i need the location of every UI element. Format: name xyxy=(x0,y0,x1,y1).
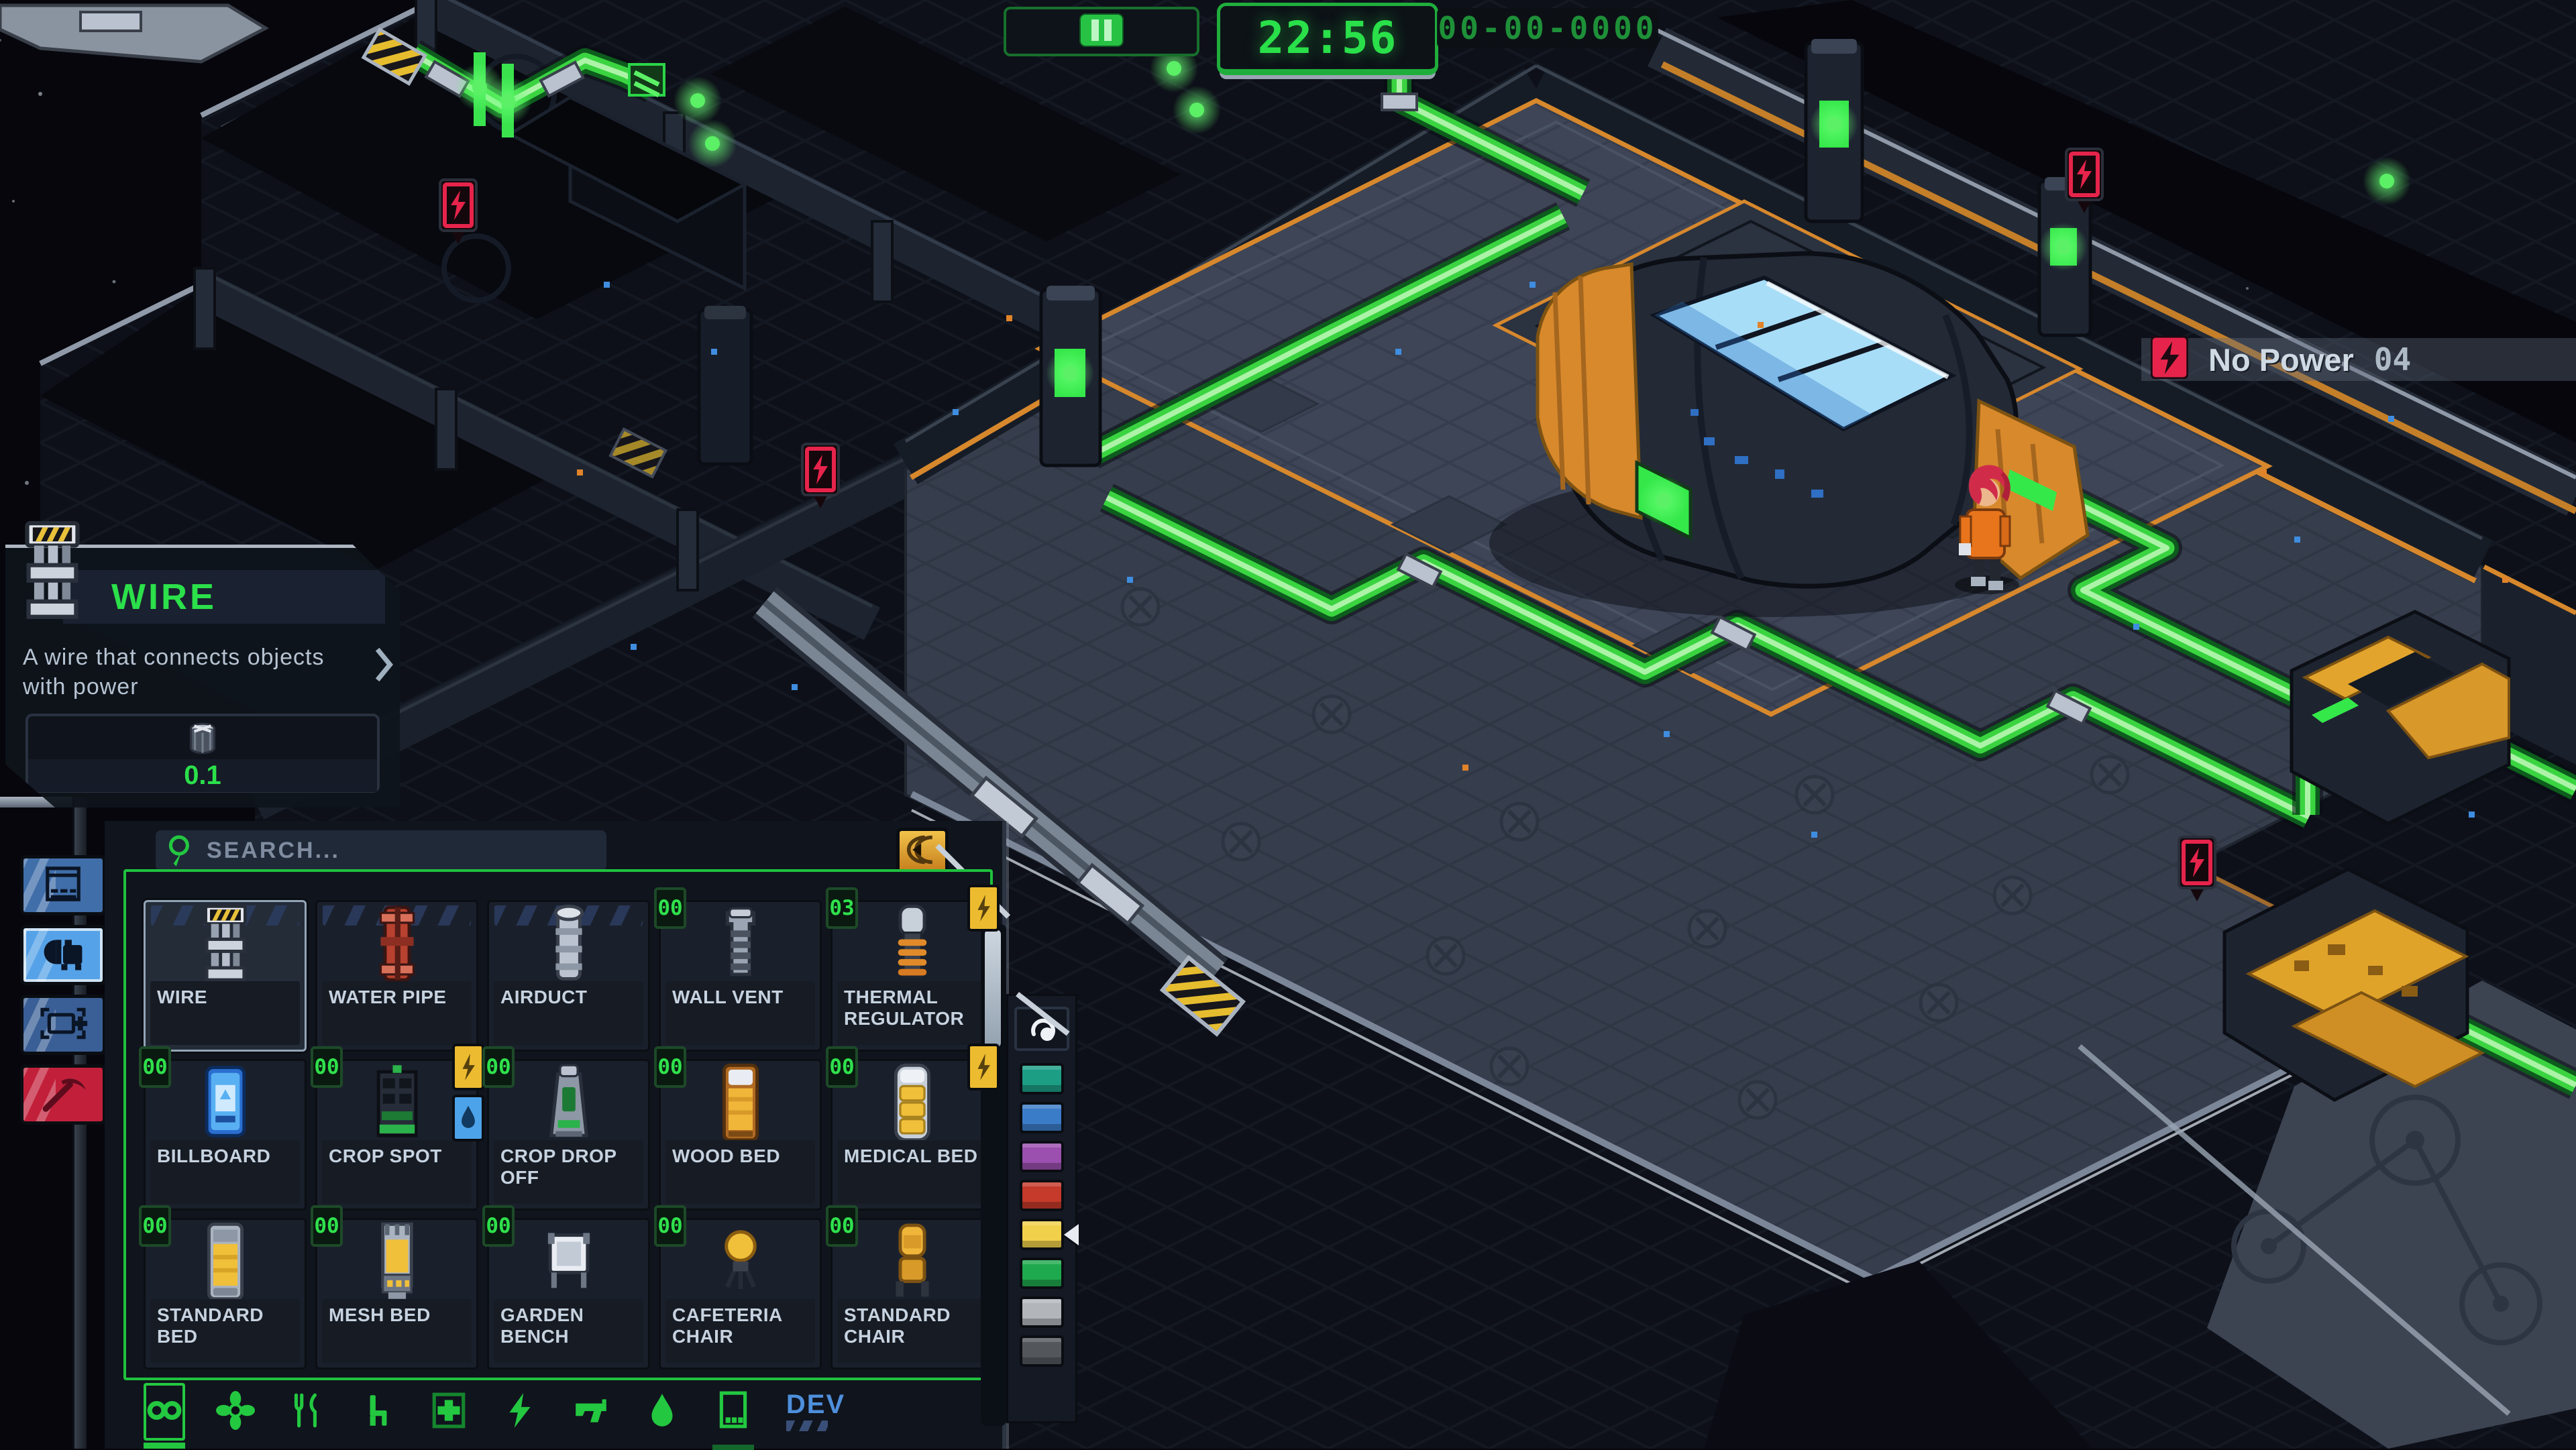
sidebar-button-objects[interactable] xyxy=(20,925,106,985)
category-tab-strip: DEV xyxy=(144,1383,848,1441)
zone-frame-plus-icon xyxy=(35,1003,91,1048)
tooltip-cost-box: 0.1 xyxy=(25,714,380,793)
swatch-blue[interactable] xyxy=(1020,1102,1064,1133)
tooltip-title: WIRE xyxy=(111,576,217,618)
item-crop-spot[interactable]: CROP SPOT00 xyxy=(315,1059,478,1211)
power-badge xyxy=(452,1044,484,1091)
item-label: WOOD BED xyxy=(672,1146,780,1166)
infinity-icon xyxy=(145,1391,184,1433)
tab-power[interactable] xyxy=(499,1383,541,1441)
droplet-icon xyxy=(643,1391,682,1433)
game-date: 00-00-0000 xyxy=(1437,8,1658,48)
sidebar-button-hull[interactable] xyxy=(20,855,106,915)
swatch-light-gray[interactable] xyxy=(1020,1296,1064,1328)
tab-security[interactable] xyxy=(570,1383,612,1441)
medkit-icon xyxy=(429,1391,468,1433)
cost-value: 0.1 xyxy=(28,759,377,792)
dev-tab-stripes xyxy=(786,1420,828,1431)
item-icon-wire xyxy=(146,906,305,981)
count-badge: 00 xyxy=(654,1046,686,1088)
gun-icon xyxy=(572,1391,610,1433)
count-badge: 03 xyxy=(826,887,858,929)
lightning-icon xyxy=(500,1391,539,1433)
item-billboard[interactable]: BILLBOARD00 xyxy=(144,1059,307,1211)
scrollbar-thumb[interactable] xyxy=(983,928,1003,1050)
no-power-alert-banner[interactable]: No Power 04 xyxy=(2141,338,2576,381)
scrollbar-track[interactable] xyxy=(981,924,1006,1426)
fan-icon xyxy=(216,1391,255,1433)
search-input[interactable] xyxy=(205,837,557,865)
count-badge: 00 xyxy=(654,887,686,929)
item-label: GARDEN BENCH xyxy=(500,1304,584,1347)
count-badge: 00 xyxy=(654,1205,686,1247)
item-thermal-regulator[interactable]: THERMAL REGULATOR03 xyxy=(830,900,994,1052)
tab-furniture[interactable] xyxy=(357,1383,398,1441)
sidebar-button-demolish[interactable] xyxy=(20,1064,106,1125)
color-palette-panel xyxy=(1006,994,1077,1423)
swatch-red[interactable] xyxy=(1020,1180,1064,1211)
metal-icon xyxy=(186,720,219,759)
item-wire[interactable]: WIRE xyxy=(144,900,307,1052)
item-garden-bench[interactable]: GARDEN BENCH00 xyxy=(487,1218,650,1370)
dev-tab-label: DEV xyxy=(786,1392,845,1416)
storage-box-icon xyxy=(714,1391,753,1433)
power-badge xyxy=(967,1044,1000,1091)
item-label: WIRE xyxy=(157,987,207,1007)
machine-icon xyxy=(35,933,91,978)
item-water-pipe[interactable]: WATER PIPE xyxy=(315,900,478,1052)
item-cafeteria-chair[interactable]: CAFETERIA CHAIR00 xyxy=(659,1218,822,1370)
palette-swatches xyxy=(1008,1063,1075,1367)
game-clock: 22:56 xyxy=(1217,3,1438,75)
swatch-green[interactable] xyxy=(1020,1258,1064,1289)
pause-icon xyxy=(1079,13,1124,50)
item-wall-vent[interactable]: WALL VENT00 xyxy=(659,900,822,1052)
pickaxe-icon xyxy=(35,1072,91,1117)
item-label: WALL VENT xyxy=(672,987,784,1007)
tooltip-item-icon xyxy=(19,520,86,625)
tab-dev[interactable]: DEV xyxy=(784,1383,848,1441)
search-bar[interactable] xyxy=(156,830,606,871)
item-label: AIRDUCT xyxy=(500,987,588,1007)
build-mode-sidebar xyxy=(0,845,114,1194)
item-label: THERMAL REGULATOR xyxy=(844,987,964,1029)
alert-label: No Power xyxy=(2208,341,2354,378)
item-icon-water-pipe xyxy=(317,906,476,981)
item-label: MESH BED xyxy=(329,1304,431,1325)
item-mesh-bed[interactable]: MESH BED00 xyxy=(315,1218,478,1370)
item-label: CAFETERIA CHAIR xyxy=(672,1304,782,1347)
no-power-icon xyxy=(2151,336,2188,379)
count-badge: 00 xyxy=(311,1046,343,1088)
item-label: CROP SPOT xyxy=(329,1146,442,1166)
hull-panel-icon xyxy=(35,863,91,908)
item-wood-bed[interactable]: WOOD BED00 xyxy=(659,1059,822,1211)
tab-medical[interactable] xyxy=(428,1383,470,1441)
swatch-yellow[interactable] xyxy=(1020,1219,1064,1250)
swatch-teal[interactable] xyxy=(1020,1063,1064,1095)
item-label: MEDICAL BED xyxy=(844,1146,977,1166)
item-medical-bed[interactable]: MEDICAL BED00 xyxy=(830,1059,994,1211)
item-crop-drop-off[interactable]: CROP DROP OFF00 xyxy=(487,1059,650,1211)
count-badge: 00 xyxy=(311,1205,343,1247)
build-menu-panel: WIREWATER PIPEAIRDUCTWALL VENT00THERMAL … xyxy=(105,821,1002,1449)
count-badge: 00 xyxy=(139,1046,171,1088)
item-grid-panel: WIREWATER PIPEAIRDUCTWALL VENT00THERMAL … xyxy=(123,869,993,1380)
tab-food[interactable] xyxy=(286,1383,327,1441)
sidebar-button-zones[interactable] xyxy=(20,995,106,1055)
item-airduct[interactable]: AIRDUCT xyxy=(487,900,650,1052)
item-label: BILLBOARD xyxy=(157,1146,270,1166)
count-badge: 00 xyxy=(482,1205,515,1247)
count-badge: 00 xyxy=(139,1205,171,1247)
tooltip-title-bar: WIRE xyxy=(63,570,385,624)
count-badge: 00 xyxy=(826,1046,858,1088)
collapse-arrow-icon xyxy=(905,834,940,869)
item-label: WATER PIPE xyxy=(329,987,447,1007)
alert-count: 04 xyxy=(2374,341,2411,378)
item-label: CROP DROP OFF xyxy=(500,1146,616,1188)
item-icon-airduct xyxy=(489,906,648,981)
swatch-dark-gray[interactable] xyxy=(1020,1335,1064,1367)
chair-icon xyxy=(358,1391,397,1433)
search-icon xyxy=(165,834,196,871)
water-badge xyxy=(452,1095,484,1141)
clock-time: 22:56 xyxy=(1258,12,1398,64)
item-standard-chair[interactable]: STANDARD CHAIR00 xyxy=(830,1218,994,1370)
count-badge: 00 xyxy=(482,1046,515,1088)
item-label: STANDARD BED xyxy=(157,1304,264,1347)
tooltip-description: A wire that connects objects with power xyxy=(23,643,362,702)
item-label: STANDARD CHAIR xyxy=(844,1304,951,1347)
expand-chevron-icon[interactable] xyxy=(374,645,394,684)
item-standard-bed[interactable]: STANDARD BED00 xyxy=(144,1218,307,1370)
tab-all[interactable] xyxy=(144,1383,185,1441)
tab-storage[interactable] xyxy=(712,1383,754,1441)
count-badge: 00 xyxy=(826,1205,858,1247)
item-grid: WIREWATER PIPEAIRDUCTWALL VENT00THERMAL … xyxy=(144,900,994,1370)
swatch-purple[interactable] xyxy=(1020,1141,1064,1172)
utensils-icon xyxy=(287,1391,326,1433)
power-badge xyxy=(967,885,1000,932)
tab-life-support[interactable] xyxy=(215,1383,256,1441)
tab-water[interactable] xyxy=(641,1383,683,1441)
pause-button[interactable] xyxy=(1004,7,1199,56)
